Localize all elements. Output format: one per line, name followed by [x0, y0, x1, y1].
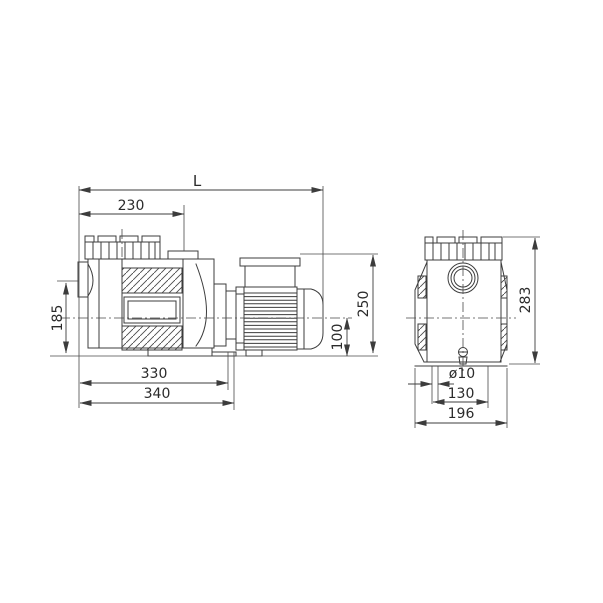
front-strainer-lid [425, 237, 502, 260]
discharge-port [168, 251, 198, 259]
motor-flange [236, 287, 244, 350]
section-hatch-lower [122, 326, 182, 350]
strainer-lid [85, 236, 160, 259]
dim-label-283: 283 [518, 287, 534, 314]
section-hatch-upper [122, 268, 182, 293]
motor-cooling-fins [244, 293, 297, 347]
motor-foot [246, 350, 262, 356]
pump-body [78, 251, 236, 356]
dim-label-d10: ø10 [449, 366, 475, 382]
dim-label-100: 100 [330, 324, 346, 351]
dim-label-230: 230 [118, 198, 145, 214]
dim-label-330: 330 [141, 366, 168, 382]
motor [236, 258, 323, 356]
dim-label-185: 185 [50, 305, 66, 332]
seal-housing [214, 284, 236, 346]
pump-dimension-drawing: L 230 185 330 340 250 100 [0, 0, 603, 603]
dim-label-250: 250 [356, 291, 372, 318]
pump-side-view [50, 229, 378, 356]
dim-label-196: 196 [448, 406, 475, 422]
terminal-box [240, 258, 300, 266]
dim-label-overall-length: L [193, 172, 202, 190]
suction-port [78, 262, 88, 297]
front-view-dimensions: 283 ø10 130 196 [408, 237, 540, 428]
technical-drawing-page: L 230 185 330 340 250 100 [0, 0, 603, 603]
lid-rib-lines [93, 243, 155, 258]
motor-end-cap [304, 289, 323, 349]
dim-label-130: 130 [448, 386, 475, 402]
volute-bracket [183, 259, 214, 348]
front-lid-rib-lines [433, 244, 495, 259]
foot-hole-lines [432, 366, 438, 404]
front-body [415, 260, 507, 404]
dim-label-340: 340 [144, 386, 171, 402]
